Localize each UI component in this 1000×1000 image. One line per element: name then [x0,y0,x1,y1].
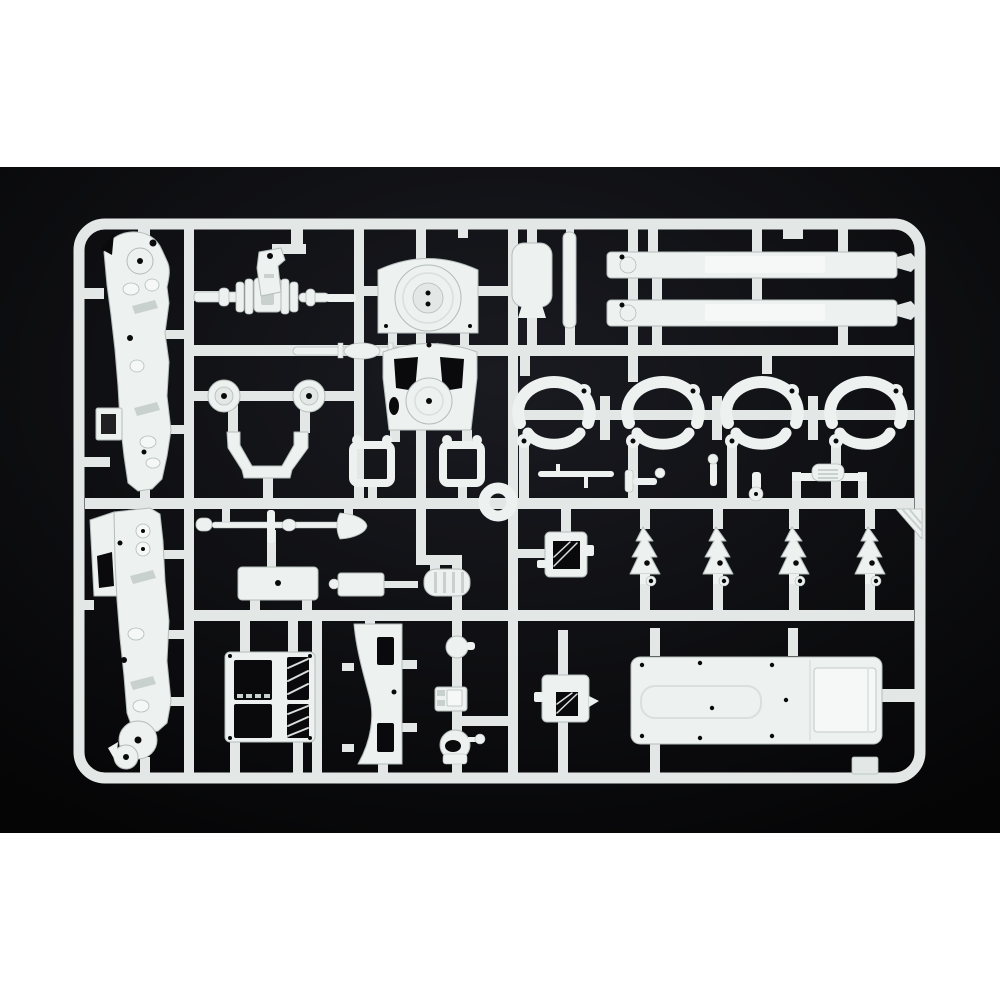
chassis-beam-lower [607,300,897,326]
road-wheel-left [208,380,240,412]
model-kit-sprue-photo [0,0,1000,1000]
clevis-block [435,687,467,711]
cab-roof-arch [383,343,477,431]
grille-box-upper [537,532,594,577]
corner-tab [852,757,878,774]
grille-box-lower [534,675,599,722]
finned-muffler [424,569,470,596]
chassis-deck-plate [631,657,882,744]
cab-front-panel [225,652,315,742]
base-plate [238,567,318,600]
photo-frame: Product photograph of an unpainted light… [0,0,1000,1000]
chassis-beam-upper [607,252,897,278]
road-wheel-right [293,380,325,412]
transmission-cover [378,259,478,334]
support-rod [563,232,576,328]
